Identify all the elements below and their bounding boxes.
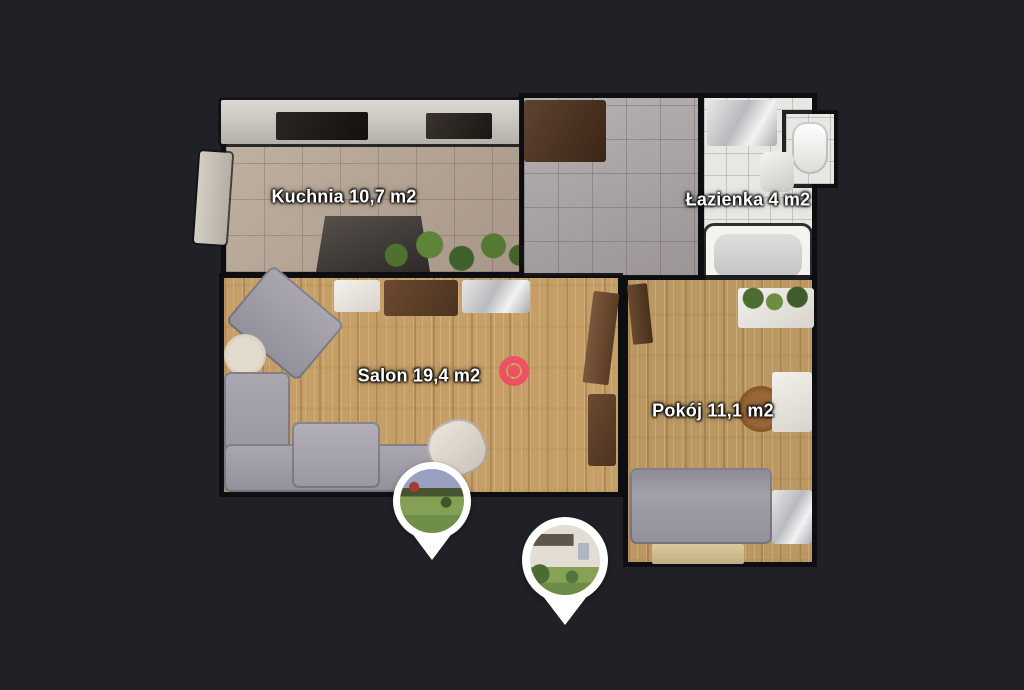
kitchen-counter — [221, 100, 520, 144]
bathroom-sink — [760, 152, 794, 192]
pokoj-sofa-backrest — [632, 470, 770, 496]
room-label-kuchnia: Kuchnia 10,7 m2 — [271, 187, 416, 208]
kitchen-door-left — [194, 151, 232, 245]
salon-cabinet-white — [334, 280, 380, 312]
360-view-point-dot — [508, 365, 520, 377]
salon-right-cabinet — [588, 394, 616, 466]
kitchen-plant — [378, 224, 530, 276]
bathroom-washer — [707, 100, 777, 146]
360-view-point-icon[interactable] — [499, 356, 529, 386]
kitchen-cooktop — [276, 112, 368, 140]
kitchen-sink — [426, 113, 492, 139]
bathroom-bathtub-basin — [714, 234, 802, 278]
salon-tv-dresser — [384, 280, 458, 316]
salon-chaise — [292, 422, 380, 488]
room-label-pokoj: Pokój 11,1 m2 — [652, 401, 774, 422]
pokoj-plant-shelf — [738, 288, 814, 328]
photo-pin-garden-thumbnail — [400, 469, 464, 533]
photo-pin-tip — [539, 591, 591, 625]
hallway-wardrobe — [524, 100, 606, 162]
room-label-lazienka: Łazienka 4 m2 — [686, 190, 811, 211]
bathroom-bathtub — [706, 226, 810, 286]
pokoj-pouf — [772, 490, 812, 544]
room-label-salon: Salon 19,4 m2 — [358, 366, 481, 387]
photo-pin-building[interactable] — [522, 517, 608, 625]
photo-pin-garden[interactable] — [393, 462, 471, 562]
pokoj-sofa-bed — [630, 468, 772, 544]
floorplan-canvas: Kuchnia 10,7 m2 Łazienka 4 m2 Salon 19,4… — [0, 0, 1024, 690]
salon-sideboard — [462, 280, 530, 313]
bathroom-toilet — [792, 122, 828, 174]
pokoj-bed-step — [652, 544, 744, 564]
pokoj-shelf-plants — [738, 282, 814, 318]
pokoj-desk — [772, 372, 812, 432]
photo-pin-building-thumbnail — [530, 525, 600, 595]
salon-side-table — [224, 334, 266, 376]
